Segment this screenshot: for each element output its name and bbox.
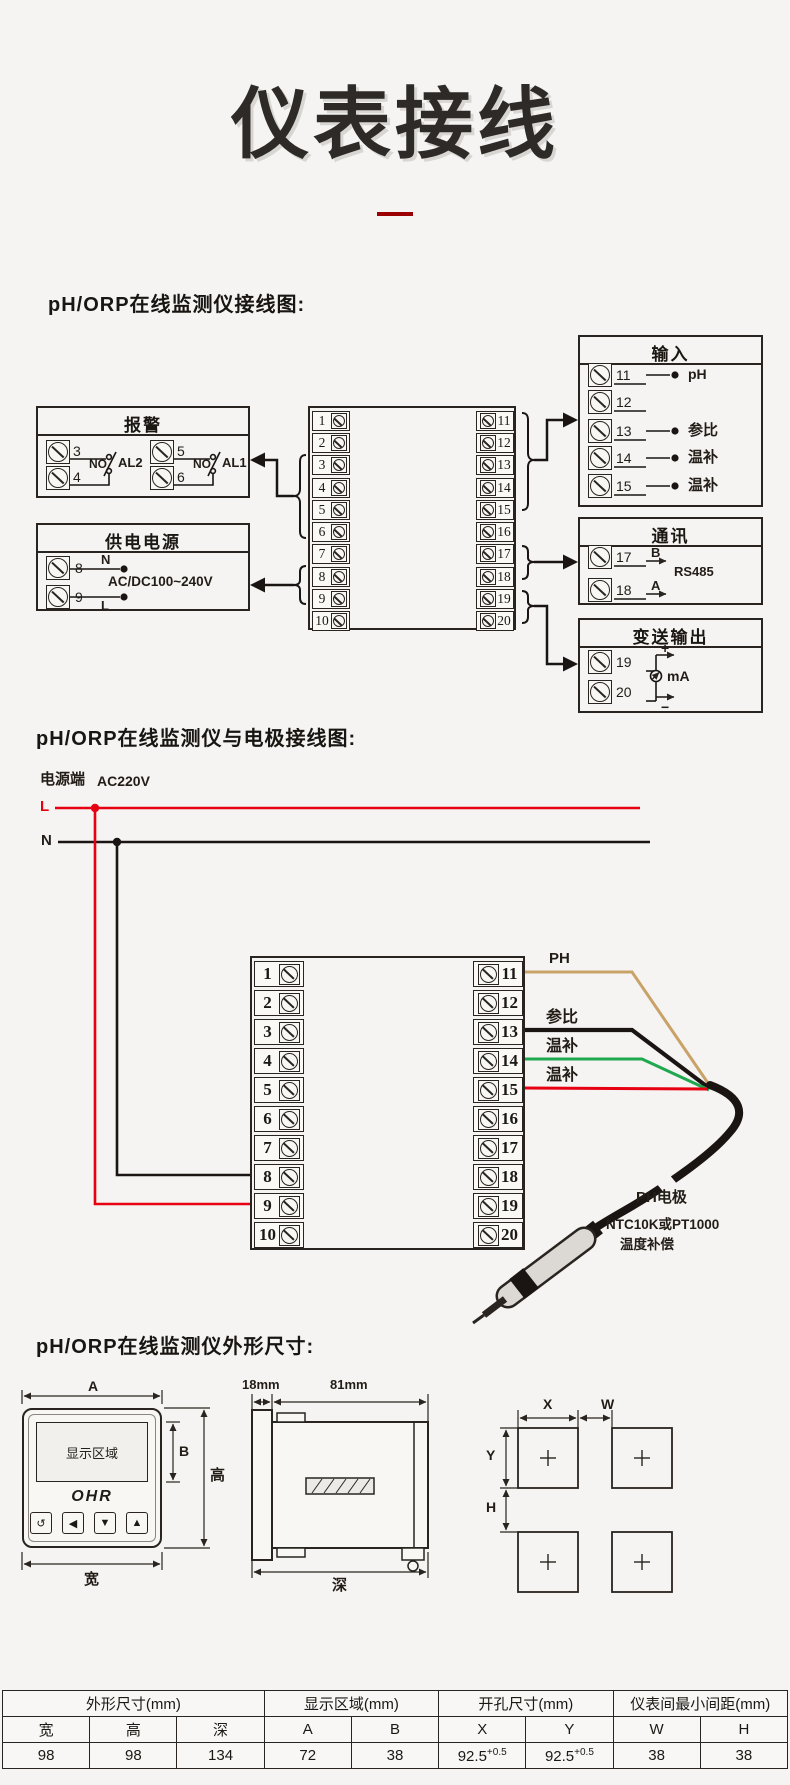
screw-terminal-icon: [279, 1196, 300, 1217]
screw-terminal-icon: [588, 578, 612, 602]
terminal-number: 6: [315, 524, 330, 540]
terminal-number: 4: [258, 1051, 278, 1071]
dim-b-label: B: [179, 1444, 189, 1459]
dim-depth-label: 深: [332, 1578, 347, 1595]
terminal-number: 11: [500, 964, 520, 984]
screw-terminal-icon: [588, 680, 612, 704]
mains-voltage-label: AC220V: [97, 774, 150, 789]
screw-terminal-icon: [331, 546, 347, 562]
alarm-box-divider: [37, 434, 249, 436]
terminal-cell: 7: [312, 544, 350, 564]
value-cell: 92.5+0.5: [439, 1743, 526, 1769]
screw-terminal-icon: [480, 569, 496, 585]
screw-terminal-icon: [279, 993, 300, 1014]
terminal-number: 13: [500, 1022, 520, 1042]
terminal-cell: 7: [254, 1135, 304, 1161]
side-view-drawing: [252, 1394, 428, 1578]
terminal-number: 15: [616, 479, 632, 494]
terminal-cell: 10: [312, 611, 350, 631]
terminal-number: 3: [258, 1022, 278, 1042]
screw-terminal-icon: [46, 466, 70, 490]
screw-terminal-icon: [588, 545, 612, 569]
col-header: 宽: [3, 1717, 90, 1743]
terminal-number: 14: [497, 480, 512, 496]
brand-logo-text: OHR: [71, 1488, 113, 1505]
panel-cutout-drawing: [500, 1410, 672, 1592]
terminal-cell: 5: [312, 500, 350, 520]
left-button[interactable]: ◀: [62, 1512, 84, 1534]
live-wire-label: L: [40, 799, 49, 816]
screw-terminal-icon: [480, 435, 496, 451]
electrode-sensor-label: NTC10K或PT1000: [606, 1218, 719, 1233]
alarm2-label: AL2: [118, 456, 143, 470]
screw-terminal-icon: [480, 480, 496, 496]
screw-terminal-icon: [46, 585, 70, 609]
screw-terminal-icon: [331, 457, 347, 473]
terminal-number: 18: [616, 583, 632, 598]
terminal-cell: 12: [476, 433, 514, 453]
value-base: 92.5: [545, 1748, 574, 1765]
terminal-cell: 18: [476, 567, 514, 587]
rs485-a-label: A: [651, 579, 660, 593]
terminal-cell: 18: [473, 1164, 523, 1190]
reference-wire-label: 参比: [546, 1009, 578, 1027]
screw-terminal-icon: [150, 440, 174, 464]
screw-terminal-icon: [588, 474, 612, 498]
terminal-cell: 15: [473, 1077, 523, 1103]
page: 仪表接线 pH/ORP在线监测仪接线图:: [0, 0, 790, 1785]
dim-height-label: 高: [210, 1468, 225, 1485]
terminal-number: 20: [497, 613, 512, 629]
terminal-block-1: 1 2 3 4 5 6 7 8 9 10 11 12 13 14 15 16 1…: [308, 406, 516, 630]
ma-unit-label: mA: [667, 669, 690, 684]
terminal-number: 15: [497, 502, 512, 518]
screw-terminal-icon: [588, 363, 612, 387]
terminal-number: 6: [177, 470, 185, 485]
screw-terminal-icon: [46, 556, 70, 580]
terminal-number: 15: [500, 1080, 520, 1100]
mains-label: 电源端: [40, 772, 85, 789]
terminal-number: 20: [500, 1225, 520, 1245]
screw-terminal-icon: [279, 1167, 300, 1188]
terminal-cell: 5: [254, 1077, 304, 1103]
value-tolerance: +0.5: [487, 1747, 507, 1758]
terminal-cell: 3: [312, 455, 350, 475]
electrode-name-label: PH电极: [636, 1190, 687, 1207]
terminal-cell: 13: [476, 455, 514, 475]
terminal-number: 2: [315, 435, 330, 451]
rs485-label: RS485: [674, 565, 714, 579]
comm-box-title: 通讯: [580, 522, 761, 547]
terminal-number: 9: [75, 590, 83, 605]
minus-label: −: [661, 700, 669, 715]
col-header: 高: [90, 1717, 177, 1743]
voltage-range-label: AC/DC100~240V: [108, 575, 213, 590]
ph-wire-label: PH: [549, 951, 570, 968]
screw-terminal-icon: [480, 502, 496, 518]
down-button[interactable]: ▼: [94, 1512, 116, 1534]
temp-comp-wire-label: 温补: [546, 1038, 578, 1056]
screw-terminal-icon: [478, 1225, 499, 1246]
screw-terminal-icon: [279, 964, 300, 985]
terminal-cell: 19: [473, 1193, 523, 1219]
screw-terminal-icon: [331, 613, 347, 629]
terminal-cell: 12: [473, 990, 523, 1016]
dim-81mm-label: 81mm: [330, 1378, 368, 1392]
output-box-title: 变送输出: [580, 623, 761, 648]
terminal-number: 19: [616, 655, 632, 670]
terminal-number: 18: [497, 569, 512, 585]
table-row: 宽 高 深 A B X Y W H: [3, 1717, 788, 1743]
terminal-number: 17: [497, 546, 512, 562]
temp-comp-label: 温补: [688, 450, 718, 467]
terminal-cell: 8: [254, 1164, 304, 1190]
terminal-number: 16: [500, 1109, 520, 1129]
terminal-cell: 9: [312, 589, 350, 609]
screw-terminal-icon: [279, 1225, 300, 1246]
power-box-title: 供电电源: [38, 528, 248, 553]
plus-label: +: [661, 641, 669, 656]
screw-terminal-icon: [331, 569, 347, 585]
dim-a-label: A: [88, 1379, 98, 1394]
display-area-label: 显示区域: [66, 1443, 118, 1462]
section3-heading: pH/ORP在线监测仪外形尺寸:: [36, 1330, 314, 1359]
screw-terminal-icon: [478, 1051, 499, 1072]
terminal-number: 3: [315, 457, 330, 473]
value-cell: 38: [613, 1743, 700, 1769]
dim-width-label: 宽: [84, 1572, 99, 1589]
terminal-number: 17: [616, 550, 632, 565]
terminal-number: 9: [315, 591, 330, 607]
screw-terminal-icon: [588, 419, 612, 443]
terminal-number: 5: [177, 444, 185, 459]
up-button[interactable]: ▲: [126, 1512, 148, 1534]
terminal-number: 13: [497, 457, 512, 473]
terminal-number: 6: [258, 1109, 278, 1129]
screw-terminal-icon: [480, 457, 496, 473]
terminal-cell: 20: [473, 1222, 523, 1248]
neutral-label: N: [101, 553, 110, 567]
terminal-cell: 4: [312, 478, 350, 498]
screw-terminal-icon: [331, 480, 347, 496]
col-header: Y: [526, 1717, 613, 1743]
value-cell: 98: [3, 1743, 90, 1769]
terminal-number: 11: [497, 413, 512, 429]
group-header: 显示区域(mm): [264, 1691, 438, 1717]
dim-h-label: H: [486, 1500, 496, 1515]
terminal-number: 5: [258, 1080, 278, 1100]
screw-terminal-icon: [478, 964, 499, 985]
terminal-cell: 13: [473, 1019, 523, 1045]
reset-button[interactable]: ↺: [30, 1512, 52, 1534]
terminal-number: 10: [258, 1225, 278, 1245]
brand-logo: OHR: [22, 1488, 162, 1506]
col-header: B: [351, 1717, 438, 1743]
value-base: 92.5: [458, 1748, 487, 1765]
terminal-cell: 14: [476, 478, 514, 498]
terminal-cell: 20: [476, 611, 514, 631]
down-arrow-icon: ▼: [100, 1517, 111, 1529]
table-row: 外形尺寸(mm) 显示区域(mm) 开孔尺寸(mm) 仪表间最小间距(mm): [3, 1691, 788, 1717]
screw-terminal-icon: [478, 1080, 499, 1101]
terminal-cell: 8: [312, 567, 350, 587]
value-cell: 72: [264, 1743, 351, 1769]
terminal-number: 7: [315, 546, 330, 562]
terminal-number: 8: [315, 569, 330, 585]
terminal-cell: 1: [312, 411, 350, 431]
terminal-number: 19: [497, 591, 512, 607]
dim-x-label: X: [543, 1397, 552, 1412]
terminal-cell: 11: [473, 961, 523, 987]
terminal-number: 4: [73, 470, 81, 485]
terminal-cell: 10: [254, 1222, 304, 1248]
ph-signal-label: pH: [688, 367, 707, 382]
screw-terminal-icon: [480, 413, 496, 429]
screw-terminal-icon: [279, 1022, 300, 1043]
terminal-number: 13: [616, 424, 632, 439]
screw-terminal-icon: [331, 524, 347, 540]
output-box-divider: [579, 646, 762, 648]
screw-terminal-icon: [331, 435, 347, 451]
spec-table: 外形尺寸(mm) 显示区域(mm) 开孔尺寸(mm) 仪表间最小间距(mm) 宽…: [2, 1690, 788, 1769]
terminal-cell: 1: [254, 961, 304, 987]
screw-terminal-icon: [478, 1109, 499, 1130]
dim-18mm-label: 18mm: [242, 1378, 280, 1392]
value-cell: 134: [177, 1743, 264, 1769]
screw-terminal-icon: [478, 1196, 499, 1217]
section2-heading: pH/ORP在线监测仪与电极接线图:: [36, 722, 356, 751]
terminal-number: 9: [258, 1196, 278, 1216]
terminal-number: 5: [315, 502, 330, 518]
terminal-number: 12: [616, 395, 632, 410]
terminal-number: 8: [258, 1167, 278, 1187]
value-cell: 92.5+0.5: [526, 1743, 613, 1769]
terminal-cell: 19: [476, 589, 514, 609]
screw-terminal-icon: [46, 440, 70, 464]
terminal-number: 14: [500, 1051, 520, 1071]
rs485-b-label: B: [651, 546, 660, 560]
screw-terminal-icon: [480, 524, 496, 540]
temp-comp-wire-label: 温补: [546, 1067, 578, 1085]
value-tolerance: +0.5: [574, 1747, 594, 1758]
up-arrow-icon: ▲: [132, 1517, 143, 1529]
group-header: 外形尺寸(mm): [3, 1691, 265, 1717]
reference-label: 参比: [688, 423, 718, 440]
reset-icon: ↺: [36, 1517, 45, 1530]
alarm-box-title: 报警: [38, 411, 248, 436]
screw-terminal-icon: [480, 613, 496, 629]
electrode-tempcomp-label: 温度补偿: [620, 1238, 674, 1253]
value-cell: 38: [351, 1743, 438, 1769]
terminal-cell: 6: [312, 522, 350, 542]
terminal-cell: 9: [254, 1193, 304, 1219]
terminal-cell: 16: [473, 1106, 523, 1132]
screw-terminal-icon: [331, 591, 347, 607]
terminal-number: 4: [315, 480, 330, 496]
terminal-block-2: 1 2 3 4 5 6 7 8 9 10 11 12 13 14 15 16 1…: [250, 956, 525, 1250]
screw-terminal-icon: [478, 1167, 499, 1188]
terminal-number: 12: [497, 435, 512, 451]
terminal-cell: 17: [473, 1135, 523, 1161]
terminal-number: 12: [500, 993, 520, 1013]
neutral-wire-label: N: [41, 833, 52, 850]
terminal-number: 2: [258, 993, 278, 1013]
terminal-cell: 11: [476, 411, 514, 431]
screw-terminal-icon: [279, 1109, 300, 1130]
terminal-number: 11: [616, 368, 631, 383]
screw-terminal-icon: [480, 591, 496, 607]
relay-no-label: NO: [193, 458, 211, 471]
display-area: 显示区域: [36, 1422, 148, 1482]
col-header: 深: [177, 1717, 264, 1743]
terminal-cell: 2: [254, 990, 304, 1016]
alarm1-label: AL1: [222, 456, 247, 470]
screw-terminal-icon: [279, 1138, 300, 1159]
temp-comp-label: 温补: [688, 478, 718, 495]
group-header: 开孔尺寸(mm): [439, 1691, 613, 1717]
live-label: L: [101, 599, 109, 613]
terminal-number: 14: [616, 451, 632, 466]
col-header: A: [264, 1717, 351, 1743]
screw-terminal-icon: [480, 546, 496, 562]
relay-no-label: NO: [89, 458, 107, 471]
terminal-number: 1: [258, 964, 278, 984]
terminal-cell: 6: [254, 1106, 304, 1132]
terminal-cell: 17: [476, 544, 514, 564]
screw-terminal-icon: [588, 390, 612, 414]
group-header: 仪表间最小间距(mm): [613, 1691, 787, 1717]
screw-terminal-icon: [279, 1051, 300, 1072]
terminal-cell: 15: [476, 500, 514, 520]
terminal-number: 19: [500, 1196, 520, 1216]
screw-terminal-icon: [331, 413, 347, 429]
screw-terminal-icon: [150, 466, 174, 490]
terminal-cell: 2: [312, 433, 350, 453]
terminal-number: 17: [500, 1138, 520, 1158]
terminal-cell: 3: [254, 1019, 304, 1045]
terminal-number: 16: [497, 524, 512, 540]
terminal-number: 3: [73, 444, 81, 459]
screw-terminal-icon: [478, 993, 499, 1014]
value-cell: 38: [700, 1743, 787, 1769]
screw-terminal-icon: [478, 1022, 499, 1043]
input-box-title: 输入: [580, 340, 761, 365]
terminal-number: 20: [616, 685, 632, 700]
table-row: 98 98 134 72 38 92.5+0.5 92.5+0.5 38 38: [3, 1743, 788, 1769]
value-cell: 98: [90, 1743, 177, 1769]
terminal-cell: 14: [473, 1048, 523, 1074]
screw-terminal-icon: [279, 1080, 300, 1101]
screw-terminal-icon: [478, 1138, 499, 1159]
power-box-divider: [37, 551, 249, 553]
screw-terminal-icon: [588, 650, 612, 674]
col-header: X: [439, 1717, 526, 1743]
dim-w-label: W: [601, 1397, 614, 1412]
left-arrow-icon: ◀: [69, 1517, 77, 1530]
dim-y-label: Y: [486, 1448, 495, 1463]
terminal-cell: 4: [254, 1048, 304, 1074]
terminal-number: 7: [258, 1138, 278, 1158]
terminal-number: 10: [315, 613, 330, 629]
terminal-cell: 16: [476, 522, 514, 542]
terminal-number: 8: [75, 561, 83, 576]
col-header: W: [613, 1717, 700, 1743]
terminal-number: 18: [500, 1167, 520, 1187]
col-header: H: [700, 1717, 787, 1743]
screw-terminal-icon: [588, 446, 612, 470]
screw-terminal-icon: [331, 502, 347, 518]
terminal-number: 1: [315, 413, 330, 429]
